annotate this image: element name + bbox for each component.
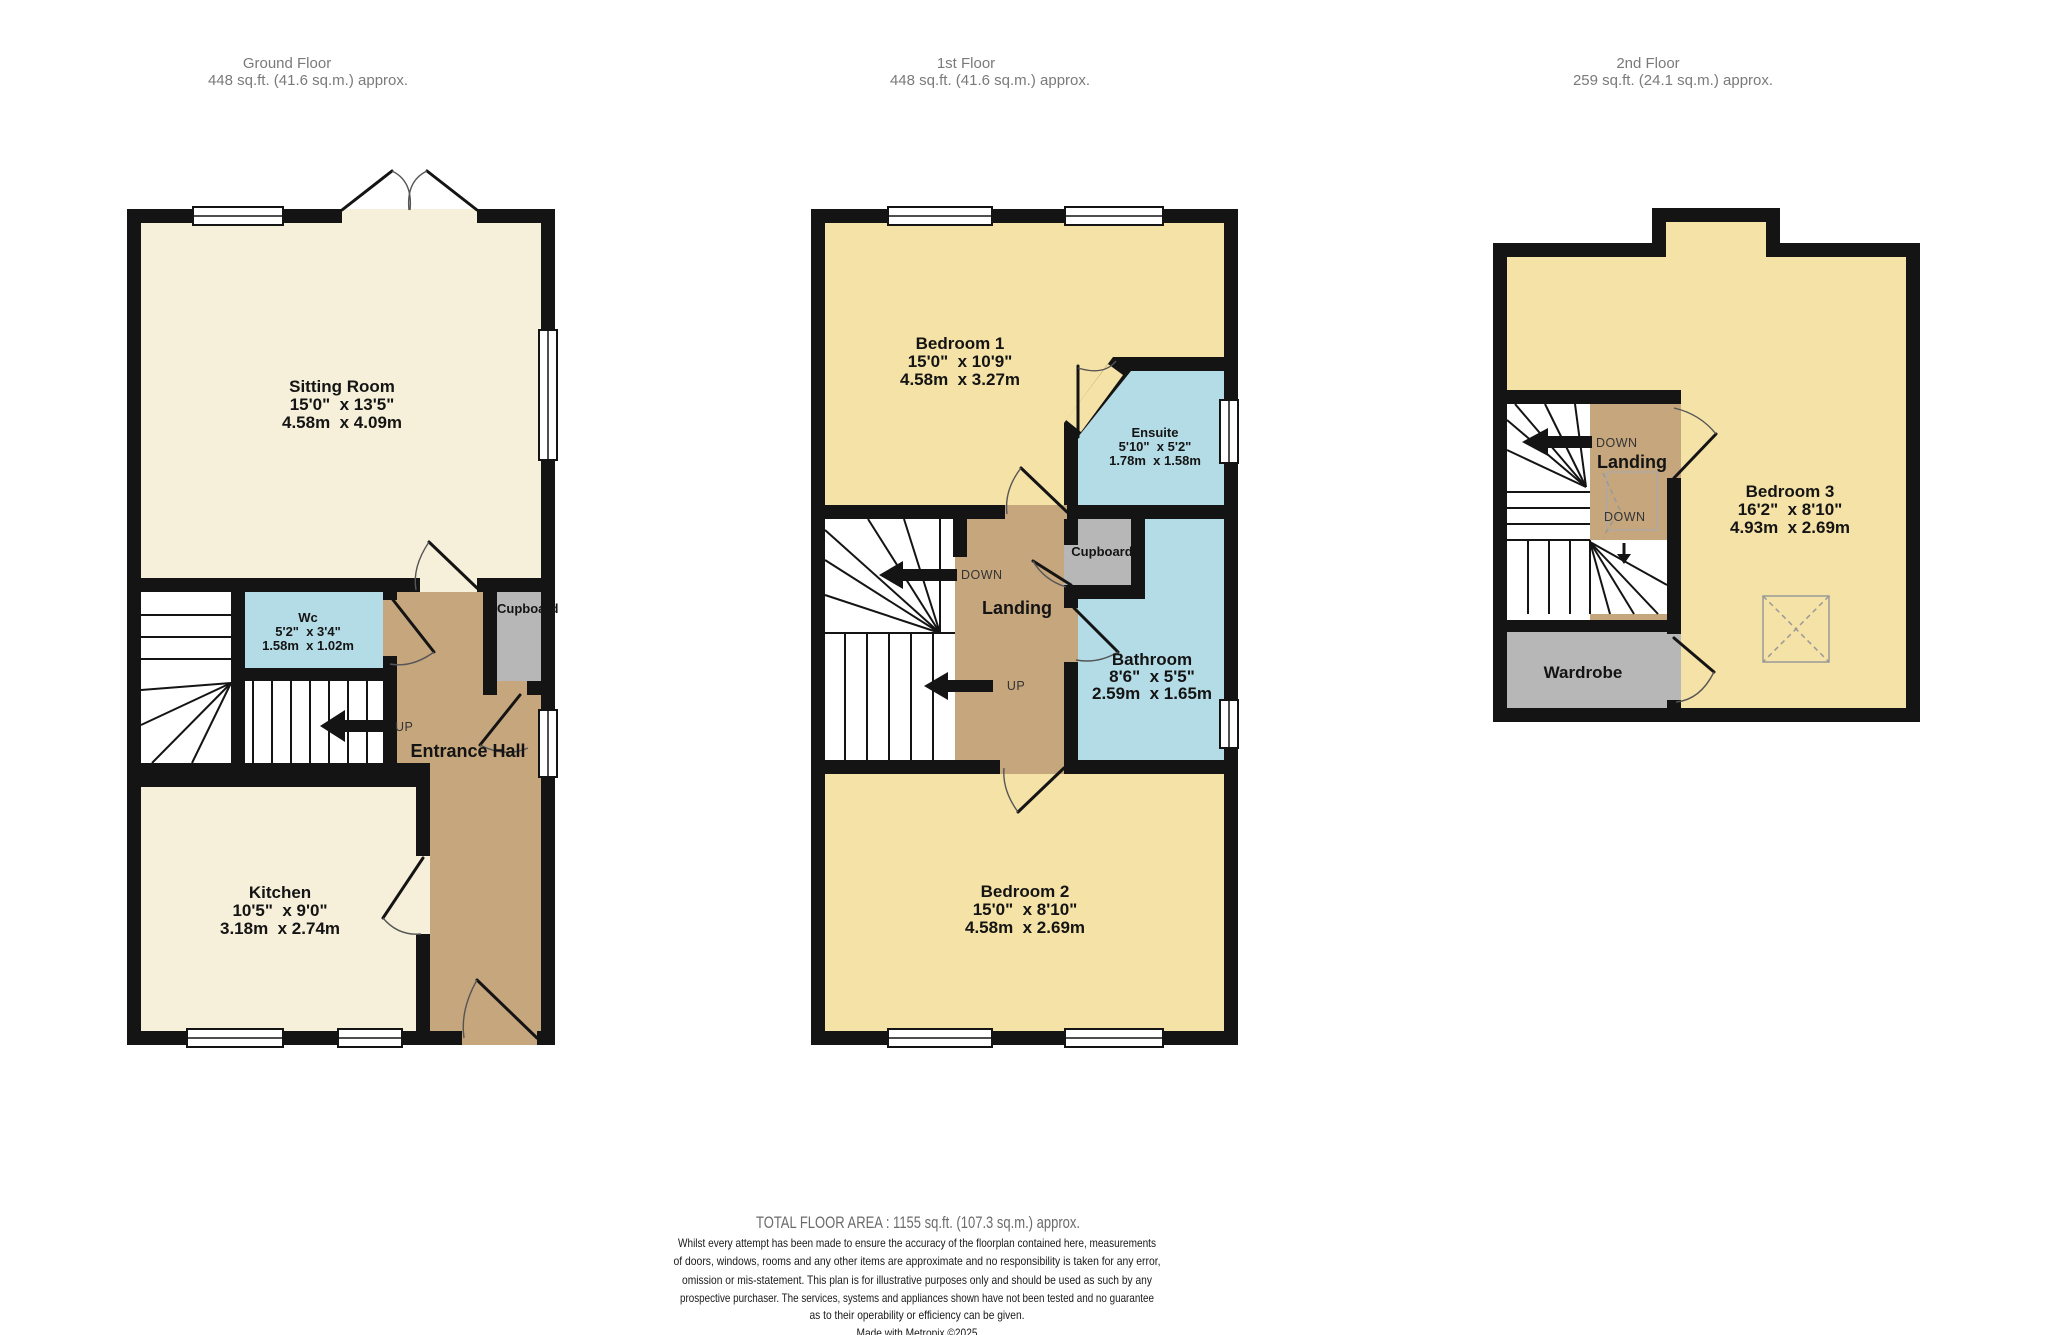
sitting-room-metric: 4.58m x 4.09m <box>282 413 402 432</box>
first-stair-wall-stub <box>953 519 967 557</box>
front-door-opening <box>462 1031 537 1045</box>
sitting-room-imperial: 15'0" x 13'5" <box>290 395 395 414</box>
sitting-room-name: Sitting Room <box>289 377 395 396</box>
bedroom2-name: Bedroom 2 <box>981 882 1070 901</box>
second-down-label-2: DOWN <box>1604 510 1646 524</box>
disclaimer-line-3: omission or mis-statement. This plan is … <box>682 1273 1152 1287</box>
credit-line: Made with Metropix ©2025 <box>857 1326 978 1335</box>
wc-imperial: 5'2" x 3'4" <box>275 624 341 639</box>
second-landing-strip <box>1590 614 1667 620</box>
bathroom-metric: 2.59m x 1.65m <box>1092 684 1212 703</box>
ground-floor-plan: Sitting Room 15'0" x 13'5" 4.58m x 4.09m… <box>127 171 558 1047</box>
second-down-label-1: DOWN <box>1596 436 1638 450</box>
bedroom3-name: Bedroom 3 <box>1746 482 1835 501</box>
second-floor-area: 259 sq.ft. (24.1 sq.m.) approx. <box>1573 72 1773 89</box>
bedroom3-imperial: 16'2" x 8'10" <box>1738 500 1843 519</box>
floor-headers: Ground Floor 448 sq.ft. (41.6 sq.m.) app… <box>208 55 1773 89</box>
entrance-hall-label: Entrance Hall <box>410 741 525 761</box>
first-landing-label: Landing <box>982 598 1052 618</box>
second-floor-plan: DOWN Landing DOWN Bedroom 3 16'2" x 8'10… <box>1493 208 1920 722</box>
second-landing-label: Landing <box>1597 452 1667 472</box>
french-door-left-leaf <box>342 171 392 210</box>
first-up-label: UP <box>1007 679 1025 693</box>
total-floor-area: TOTAL FLOOR AREA : 1155 sq.ft. (107.3 sq… <box>756 1213 1080 1232</box>
second-floor-title: 2nd Floor <box>1616 55 1679 72</box>
bathroom-door-opening <box>1064 608 1078 662</box>
second-stairs-lower <box>1590 540 1667 614</box>
bedroom2-imperial: 15'0" x 8'10" <box>973 900 1078 919</box>
bedroom3-door-opening <box>1667 404 1681 478</box>
disclaimer-line-2: of doors, windows, rooms and any other i… <box>674 1254 1161 1268</box>
wc-door-opening <box>383 600 397 656</box>
wc-metric: 1.58m x 1.02m <box>262 638 354 653</box>
disclaimer-line-4: prospective purchaser. The services, sys… <box>680 1291 1154 1305</box>
disclaimer-line-5: as to their operability or efficiency ca… <box>810 1308 1025 1322</box>
kitchen-metric: 3.18m x 2.74m <box>220 919 340 938</box>
first-landing-area <box>955 519 1064 760</box>
footer: TOTAL FLOOR AREA : 1155 sq.ft. (107.3 sq… <box>674 1213 1161 1335</box>
ground-floor-area: 448 sq.ft. (41.6 sq.m.) approx. <box>208 72 408 89</box>
ground-stairs-upper <box>141 592 231 763</box>
ensuite-imperial: 5'10" x 5'2" <box>1119 439 1192 454</box>
french-door-opening <box>342 209 477 223</box>
ground-floor-title: Ground Floor <box>243 55 331 72</box>
ground-cupboard-opening <box>497 681 527 695</box>
floorplan-canvas: Ground Floor 448 sq.ft. (41.6 sq.m.) app… <box>0 0 2048 1335</box>
bedroom1-imperial: 15'0" x 10'9" <box>908 352 1013 371</box>
ground-cupboard-label: Cupboard <box>497 601 558 616</box>
first-down-label: DOWN <box>961 568 1003 582</box>
wardrobe-label: Wardrobe <box>1544 663 1623 682</box>
ground-up-label: UP <box>395 720 413 734</box>
bedroom1-metric: 4.58m x 3.27m <box>900 370 1020 389</box>
french-door-right-leaf <box>427 171 477 210</box>
ensuite-metric: 1.78m x 1.58m <box>1109 453 1201 468</box>
kitchen-name: Kitchen <box>249 883 311 902</box>
bedroom1-door-opening <box>1005 505 1067 519</box>
bedroom2-metric: 4.58m x 2.69m <box>965 918 1085 937</box>
first-floor-plan: Bedroom 1 15'0" x 10'9" 4.58m x 3.27m En… <box>811 207 1238 1047</box>
first-floor-area: 448 sq.ft. (41.6 sq.m.) approx. <box>890 72 1090 89</box>
bedroom3-metric: 4.93m x 2.69m <box>1730 518 1850 537</box>
first-floor-title: 1st Floor <box>937 55 995 72</box>
disclaimer-line-1: Whilst every attempt has been made to en… <box>678 1236 1156 1250</box>
floorplan-page: Ground Floor 448 sq.ft. (41.6 sq.m.) app… <box>0 0 2048 1335</box>
first-cupboard-label: Cupboard <box>1071 544 1132 559</box>
ensuite-name: Ensuite <box>1132 425 1179 440</box>
wc-name: Wc <box>298 610 318 625</box>
kitchen-imperial: 10'5" x 9'0" <box>232 901 327 920</box>
bedroom2-door-opening <box>1000 760 1064 774</box>
bedroom1-name: Bedroom 1 <box>916 334 1005 353</box>
